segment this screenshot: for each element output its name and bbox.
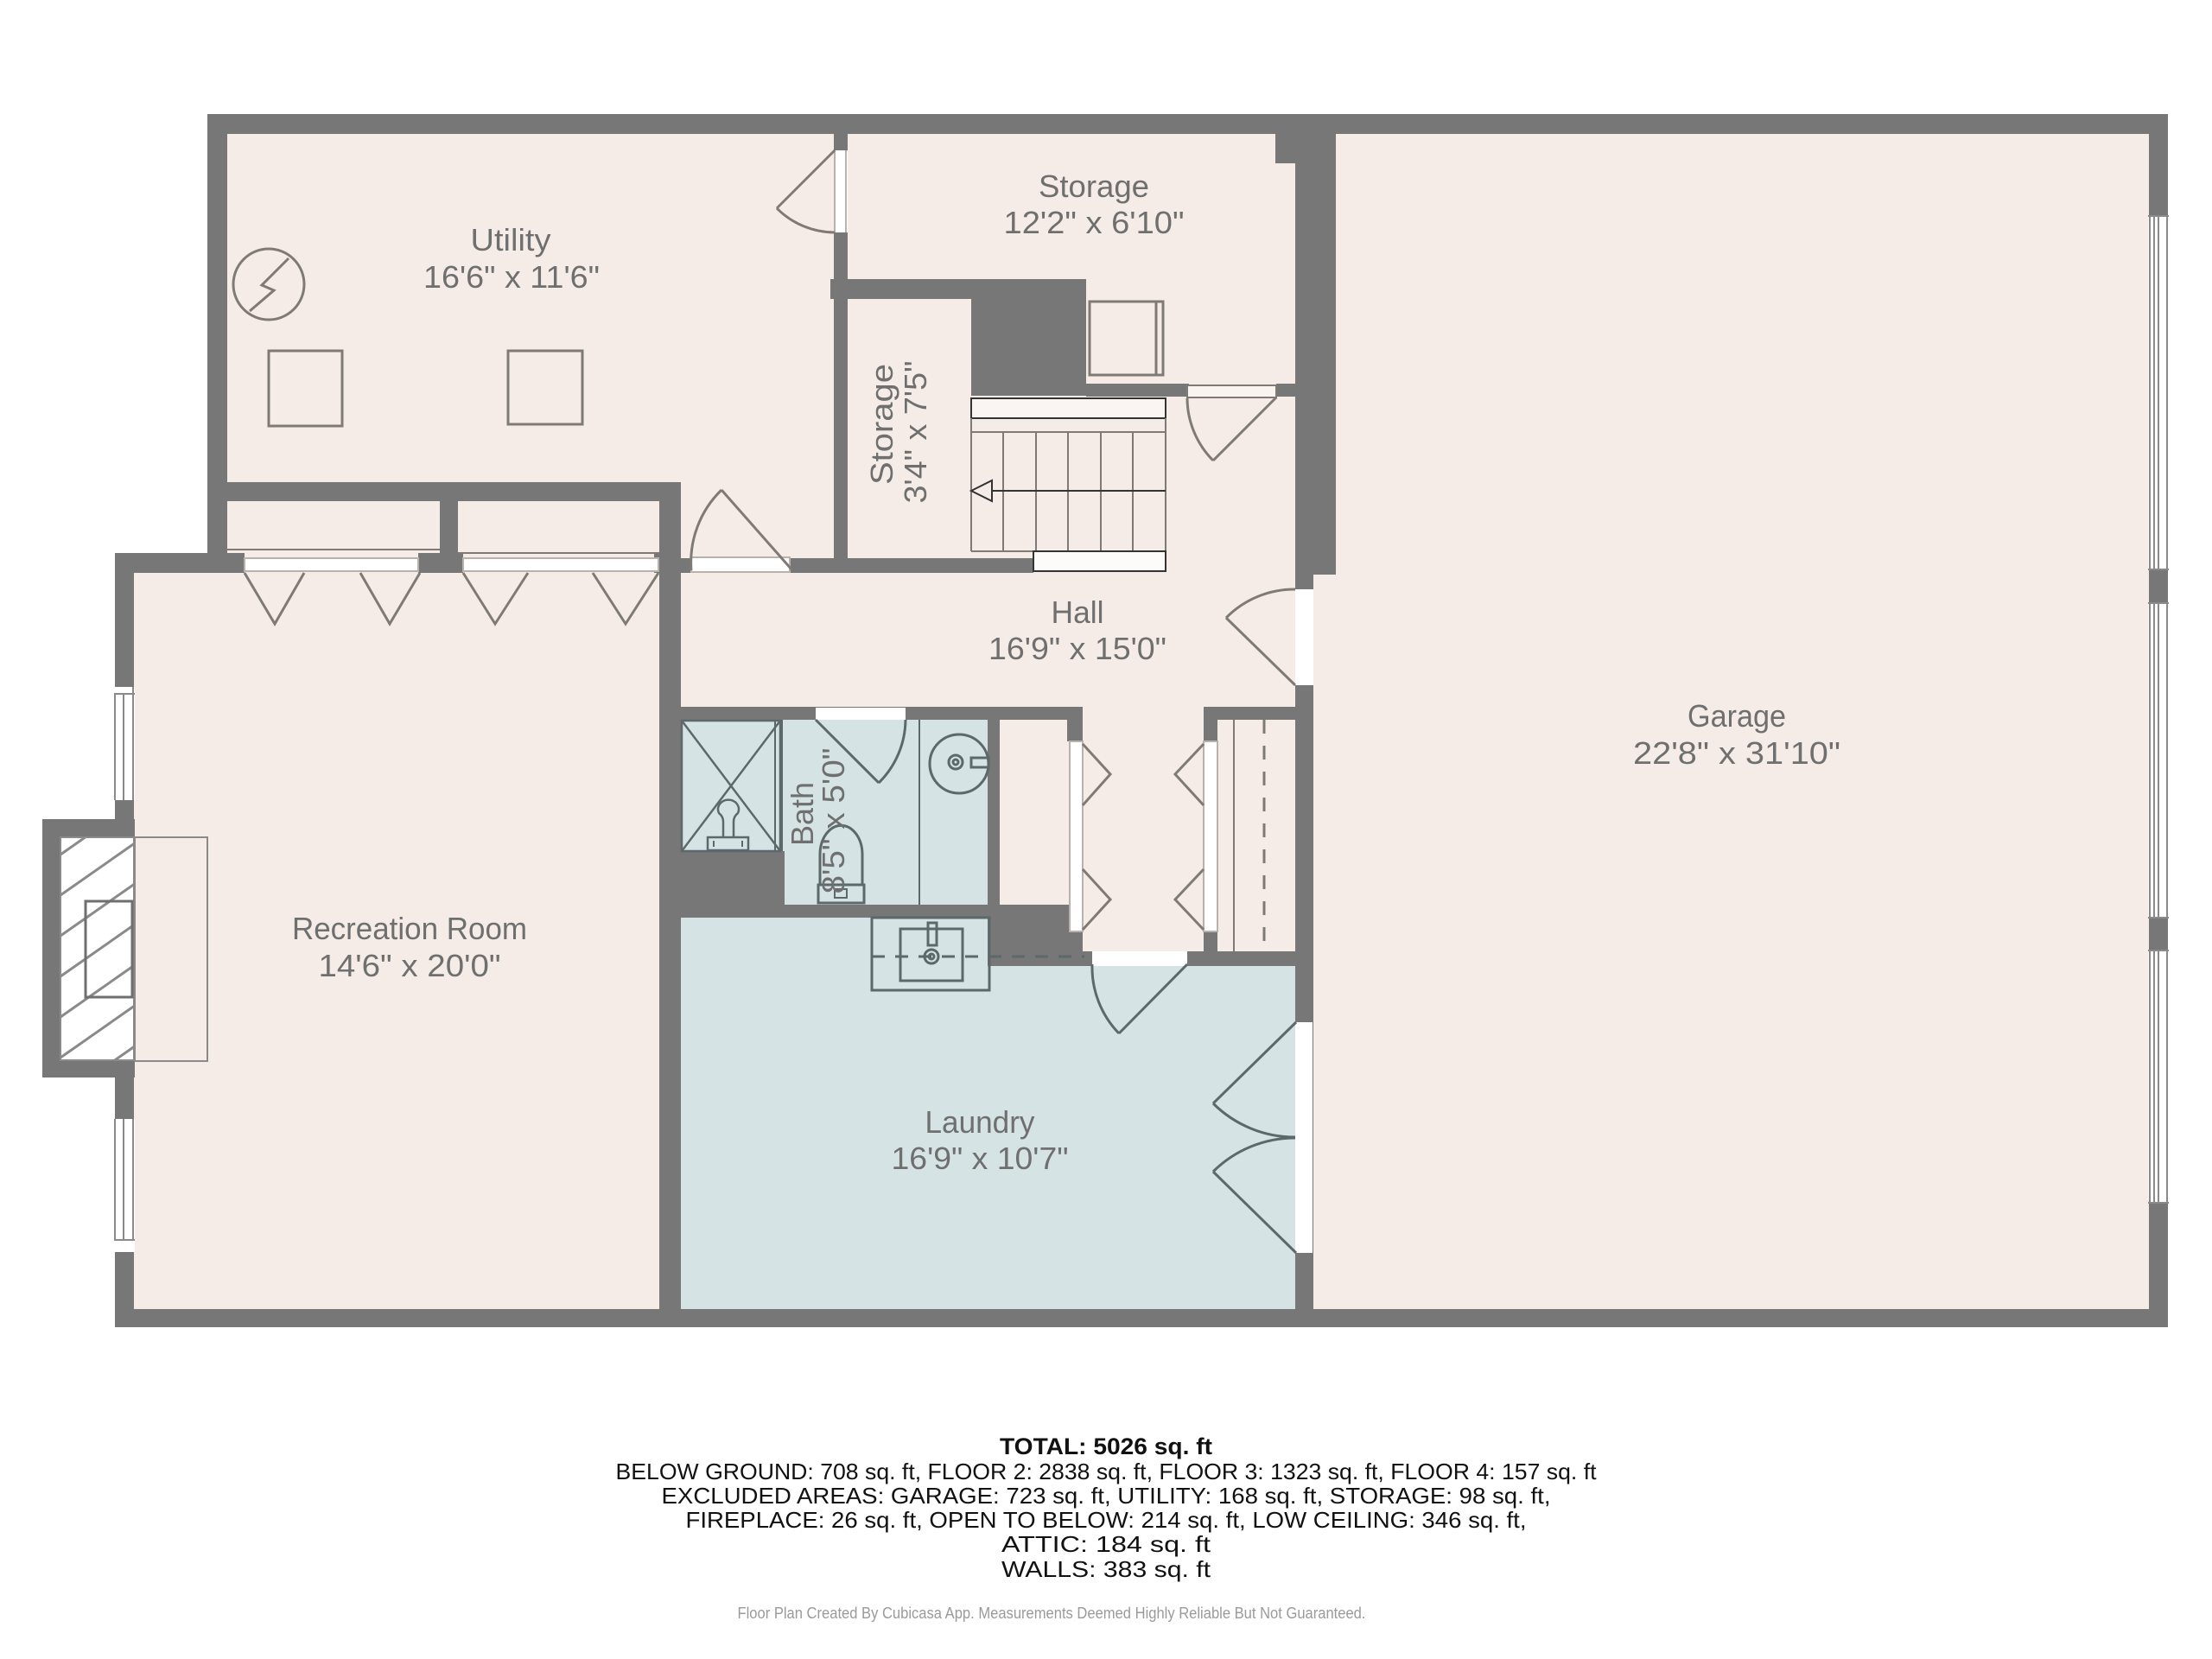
svg-text:Storage: Storage bbox=[864, 364, 899, 485]
svg-text:22'8" x 31'10": 22'8" x 31'10" bbox=[1633, 735, 1840, 771]
svg-text:Storage: Storage bbox=[1039, 168, 1149, 204]
svg-text:EXCLUDED AREAS: GARAGE: 723 sq: EXCLUDED AREAS: GARAGE: 723 sq. ft, UTIL… bbox=[662, 1483, 1551, 1509]
svg-text:16'9" x 10'7": 16'9" x 10'7" bbox=[892, 1141, 1069, 1176]
svg-text:14'6" x 20'0": 14'6" x 20'0" bbox=[319, 948, 501, 983]
svg-text:TOTAL: 5026 sq. ft: TOTAL: 5026 sq. ft bbox=[1000, 1433, 1212, 1459]
svg-text:Hall: Hall bbox=[1052, 594, 1104, 630]
svg-text:ATTIC: 184 sq. ft: ATTIC: 184 sq. ft bbox=[1001, 1531, 1211, 1557]
svg-text:3'4" x 7'5": 3'4" x 7'5" bbox=[898, 361, 933, 504]
svg-text:Garage: Garage bbox=[1688, 698, 1786, 734]
svg-text:16'6" x 11'6": 16'6" x 11'6" bbox=[423, 259, 600, 295]
svg-text:Bath: Bath bbox=[785, 782, 820, 846]
svg-text:FIREPLACE: 26 sq. ft, OPEN TO: FIREPLACE: 26 sq. ft, OPEN TO BELOW: 214… bbox=[686, 1507, 1527, 1533]
svg-text:Floor Plan Created By Cubicasa: Floor Plan Created By Cubicasa App. Meas… bbox=[738, 1605, 1366, 1622]
svg-text:16'9" x 15'0": 16'9" x 15'0" bbox=[988, 631, 1166, 666]
svg-text:Laundry: Laundry bbox=[925, 1104, 1035, 1140]
svg-text:12'2" x 6'10": 12'2" x 6'10" bbox=[1004, 205, 1185, 240]
svg-text:Utility: Utility bbox=[471, 222, 551, 257]
svg-text:WALLS: 383 sq. ft: WALLS: 383 sq. ft bbox=[1001, 1556, 1211, 1582]
svg-text:Recreation Room: Recreation Room bbox=[292, 911, 527, 946]
svg-text:8'5" x 5'0": 8'5" x 5'0" bbox=[816, 748, 851, 894]
svg-text:BELOW GROUND: 708 sq. ft, FLOO: BELOW GROUND: 708 sq. ft, FLOOR 2: 2838 … bbox=[616, 1459, 1598, 1484]
